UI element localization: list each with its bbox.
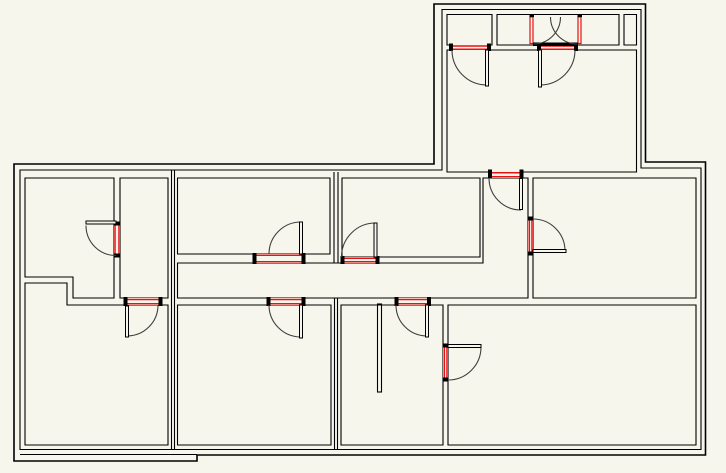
opening-center-to-bottom-right-jamb-1 [443, 378, 449, 382]
door-middle-top-2-leaf [374, 223, 377, 257]
door-bottom-right-leaf [448, 345, 481, 348]
door-wing-closet-left-leaf [486, 50, 489, 86]
opening-middle-top-to-corridor-jamb-0 [253, 253, 257, 264]
opening-corridor-to-bottom-middle-jamb-0 [267, 297, 271, 306]
door-bottom-center-leaf [426, 305, 429, 337]
opening-center-to-bottom-right [443, 344, 449, 382]
door-left-closet-to-lower-leaf [126, 306, 129, 337]
opening-corridor-to-bottom-center-jamb-0 [395, 297, 399, 306]
door-wing-to-hall-leaf [520, 179, 523, 210]
door-upper-left-rooms-leaf [86, 221, 116, 224]
door-middle-top-leaf [300, 222, 303, 254]
door-right-room-leaf [533, 250, 566, 253]
opening-wing-to-hall-jamb-1 [520, 170, 524, 179]
opening-middle-top-to-corridor-jamb-1 [302, 253, 306, 264]
opening-middle-top-to-corridor [253, 253, 306, 264]
opening-wing-to-hall-jamb-0 [488, 170, 492, 179]
entry-double-door-unit-cap-0 [530, 14, 535, 17]
entry-double-door-unit-cap-1 [578, 14, 583, 17]
opening-hall-to-right-room-jamb-0 [528, 217, 534, 221]
door-bottom-middle-leaf [300, 305, 303, 338]
opening-left-closet-to-lower-jamb-1 [159, 297, 163, 306]
opening-wing-closet-left-jamb-0 [449, 44, 453, 52]
opening-left-closet-to-lower [124, 297, 163, 306]
background [0, 0, 726, 473]
opening-middle-top2-to-corridor-jamb-0 [341, 256, 345, 264]
opening-wing-closet-left [449, 44, 491, 52]
floor-plan-svg [0, 0, 726, 473]
opening-left-closet-to-lower-jamb-0 [124, 297, 128, 306]
door-wing-closet-middle-leaf [539, 50, 542, 87]
opening-upper-left-rooms [114, 222, 121, 258]
floor-plan-canvas [0, 0, 726, 473]
opening-wing-to-hall [488, 170, 524, 179]
